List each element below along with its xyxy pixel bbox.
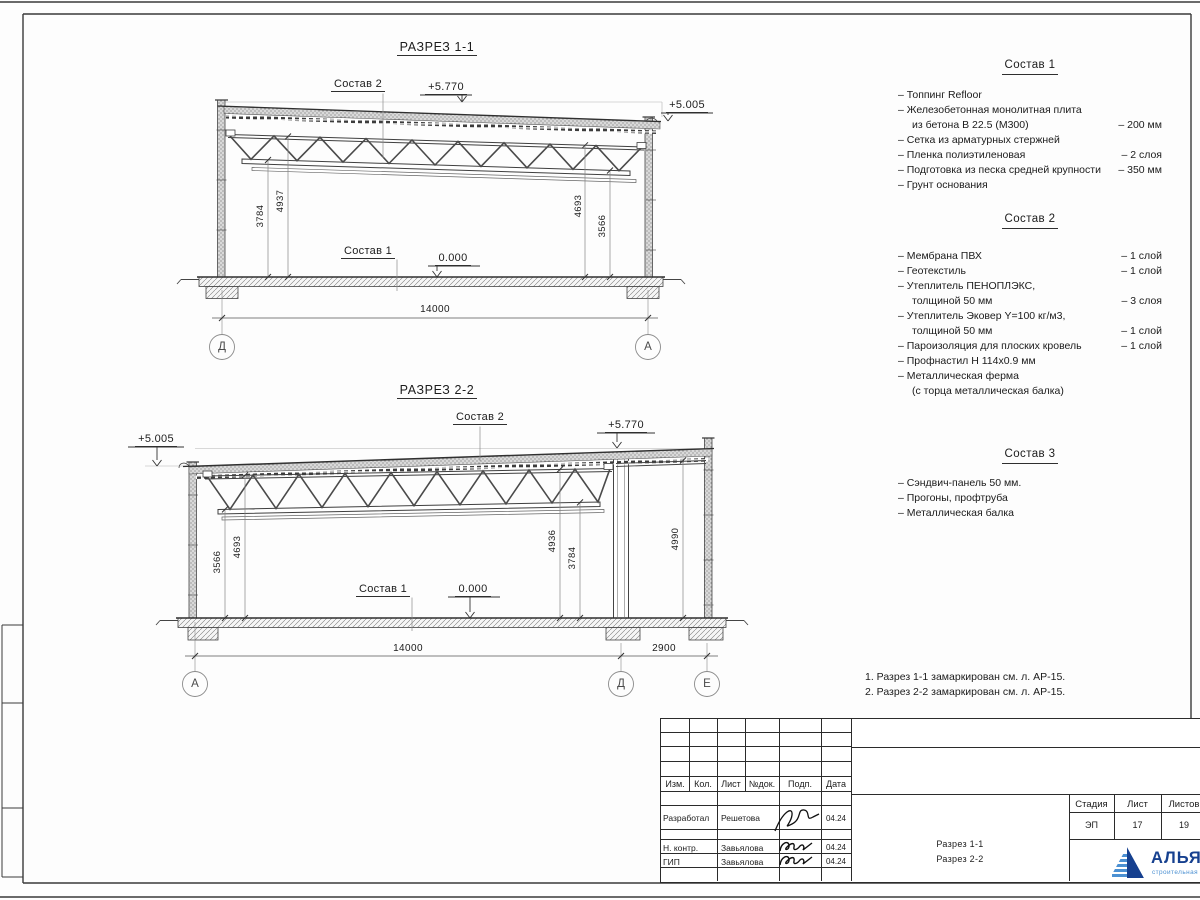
section1-elev-right: +5.005 <box>659 99 715 113</box>
section2-sostav2-label: Состав 2 <box>451 411 509 425</box>
list-item: – Топпинг Refloor <box>898 88 1162 103</box>
tb-listov-value: 19 <box>1161 820 1200 830</box>
dim-4693-s2: 4693 <box>232 517 244 577</box>
tb-row1-name: Решетова <box>721 813 777 823</box>
grid-mark-d-s1: Д <box>210 335 234 359</box>
list-item: – Подготовка из песка средней крупности–… <box>898 163 1162 178</box>
grid-mark-a-s1: А <box>636 335 660 359</box>
list-item: – Сетка из арматурных стержней <box>898 133 1162 148</box>
tb-row2-role: Н. контр. <box>663 843 717 853</box>
dim-2900-s2: 2900 <box>634 643 694 654</box>
section2-elev-left: +5.005 <box>127 433 185 447</box>
dim-4990-s2: 4990 <box>670 509 682 569</box>
section2-title: РАЗРЕЗ 2-2 <box>377 383 497 399</box>
sostav1-title: Состав 1 <box>898 58 1162 75</box>
section1-elev-top: +5.770 <box>418 81 474 95</box>
roof <box>218 106 662 134</box>
drawing-sheet: { "section1": { "title": "РАЗРЕЗ 1-1", "… <box>0 0 1200 900</box>
floor <box>177 277 685 299</box>
section2-elev-top: +5.770 <box>596 419 656 433</box>
list-item: – Железобетонная монолитная плитаиз бето… <box>898 103 1162 133</box>
list-item: – Утеплитель Эковер Y=100 кг/м3,толщиной… <box>898 309 1162 339</box>
tb-row1-role: Разработал <box>663 813 717 823</box>
grid-mark-e-s2: Е <box>695 672 719 696</box>
section1-sostav1-label: Состав 1 <box>339 245 397 259</box>
sostav3-title: Состав 3 <box>898 447 1162 464</box>
list-item: – Сэндвич-панель 50 мм. <box>898 476 1162 491</box>
list-item: – Металлическая балка <box>898 506 1162 521</box>
section2-elev-floor: 0.000 <box>446 583 500 597</box>
dim-4936-s2: 4936 <box>547 511 559 571</box>
dim-14000-s2: 14000 <box>378 643 438 654</box>
grid-mark-d-s2: Д <box>609 672 633 696</box>
tb-list-value: 17 <box>1114 820 1161 830</box>
dim-4693: 4693 <box>573 176 585 236</box>
tb-doc-line2: Разрез 2-2 <box>851 854 1069 864</box>
tb-list-label: Лист <box>1114 799 1161 810</box>
section2-sostav1-label: Состав 1 <box>354 583 412 597</box>
list-item: – Утеплитель ПЕНОПЛЭКС,толщиной 50 мм– 3… <box>898 279 1162 309</box>
list-item: – Геотекстиль– 1 слой <box>898 264 1162 279</box>
list-item: – Пленка полиэтиленовая– 2 слоя <box>898 148 1162 163</box>
sostav2-list: Состав 2 – Мембрана ПВХ– 1 слой – Геотек… <box>898 212 1162 399</box>
tb-row3-role: ГИП <box>663 857 717 867</box>
tb-col-data: Дата <box>821 779 851 789</box>
grid-mark-a-s2: А <box>183 672 207 696</box>
tb-col-ndok: №док. <box>745 779 779 789</box>
tb-row2-date: 04.24 <box>821 843 851 852</box>
floor <box>156 618 748 640</box>
signature-gip <box>779 852 819 869</box>
notes: 1. Разрез 1-1 замаркирован см. л. АР-15.… <box>865 670 1065 700</box>
list-item: – Металлическая ферма(с торца металличес… <box>898 369 1162 399</box>
sostav3-list: Состав 3 – Сэндвич-панель 50 мм. – Прого… <box>898 447 1162 521</box>
tb-row2-name: Завьялова <box>721 843 777 853</box>
section1-sostav2-label: Состав 2 <box>329 78 387 92</box>
alliance-logo-icon <box>1110 847 1144 878</box>
note-line: 1. Разрез 1-1 замаркирован см. л. АР-15. <box>865 670 1065 685</box>
dim-4937: 4937 <box>275 171 287 231</box>
tb-col-podp: Подп. <box>779 779 821 789</box>
dim-14000-s1: 14000 <box>405 304 465 315</box>
list-item: – Мембрана ПВХ– 1 слой <box>898 249 1162 264</box>
tb-stadia-value: ЭП <box>1069 820 1114 830</box>
tb-col-list: Лист <box>717 779 745 789</box>
sostav2-title: Состав 2 <box>898 212 1162 229</box>
dim-3784: 3784 <box>255 186 267 246</box>
tb-doc-line1: Разрез 1-1 <box>851 839 1069 849</box>
tb-listov-label: Листов <box>1161 799 1200 810</box>
list-item: – Грунт основания <box>898 178 1162 193</box>
tb-col-izm: Изм. <box>661 779 689 789</box>
truss <box>226 130 646 183</box>
dim-3784-s2: 3784 <box>567 528 579 588</box>
tb-stadia-label: Стадия <box>1069 799 1114 810</box>
section1-elev-floor: 0.000 <box>426 252 480 266</box>
alliance-logo-subtitle: строительная компания <box>1152 869 1200 876</box>
signature-razrabotal <box>773 803 821 837</box>
sostav1-list: Состав 1 – Топпинг Refloor – Железобетон… <box>898 58 1162 193</box>
dim-3566: 3566 <box>597 196 609 256</box>
list-item: – Прогоны, профтруба <box>898 491 1162 506</box>
list-item: – Профнастил Н 114х0.9 мм <box>898 354 1162 369</box>
alliance-logo-name: АЛЬЯНС <box>1151 849 1200 868</box>
list-item: – Пароизоляция для плоских кровель– 1 сл… <box>898 339 1162 354</box>
tb-row1-date: 04.24 <box>821 814 851 823</box>
section1-title: РАЗРЕЗ 1-1 <box>377 40 497 56</box>
dim-3566-s2: 3566 <box>212 532 224 592</box>
tb-row3-date: 04.24 <box>821 857 851 866</box>
tb-col-kol: Кол. <box>689 779 717 789</box>
note-line: 2. Разрез 2-2 замаркирован см. л. АР-15. <box>865 685 1065 700</box>
tb-row3-name: Завьялова <box>721 857 777 867</box>
title-block: Изм. Кол. Лист №док. Подп. Дата Разработ… <box>660 718 1200 883</box>
